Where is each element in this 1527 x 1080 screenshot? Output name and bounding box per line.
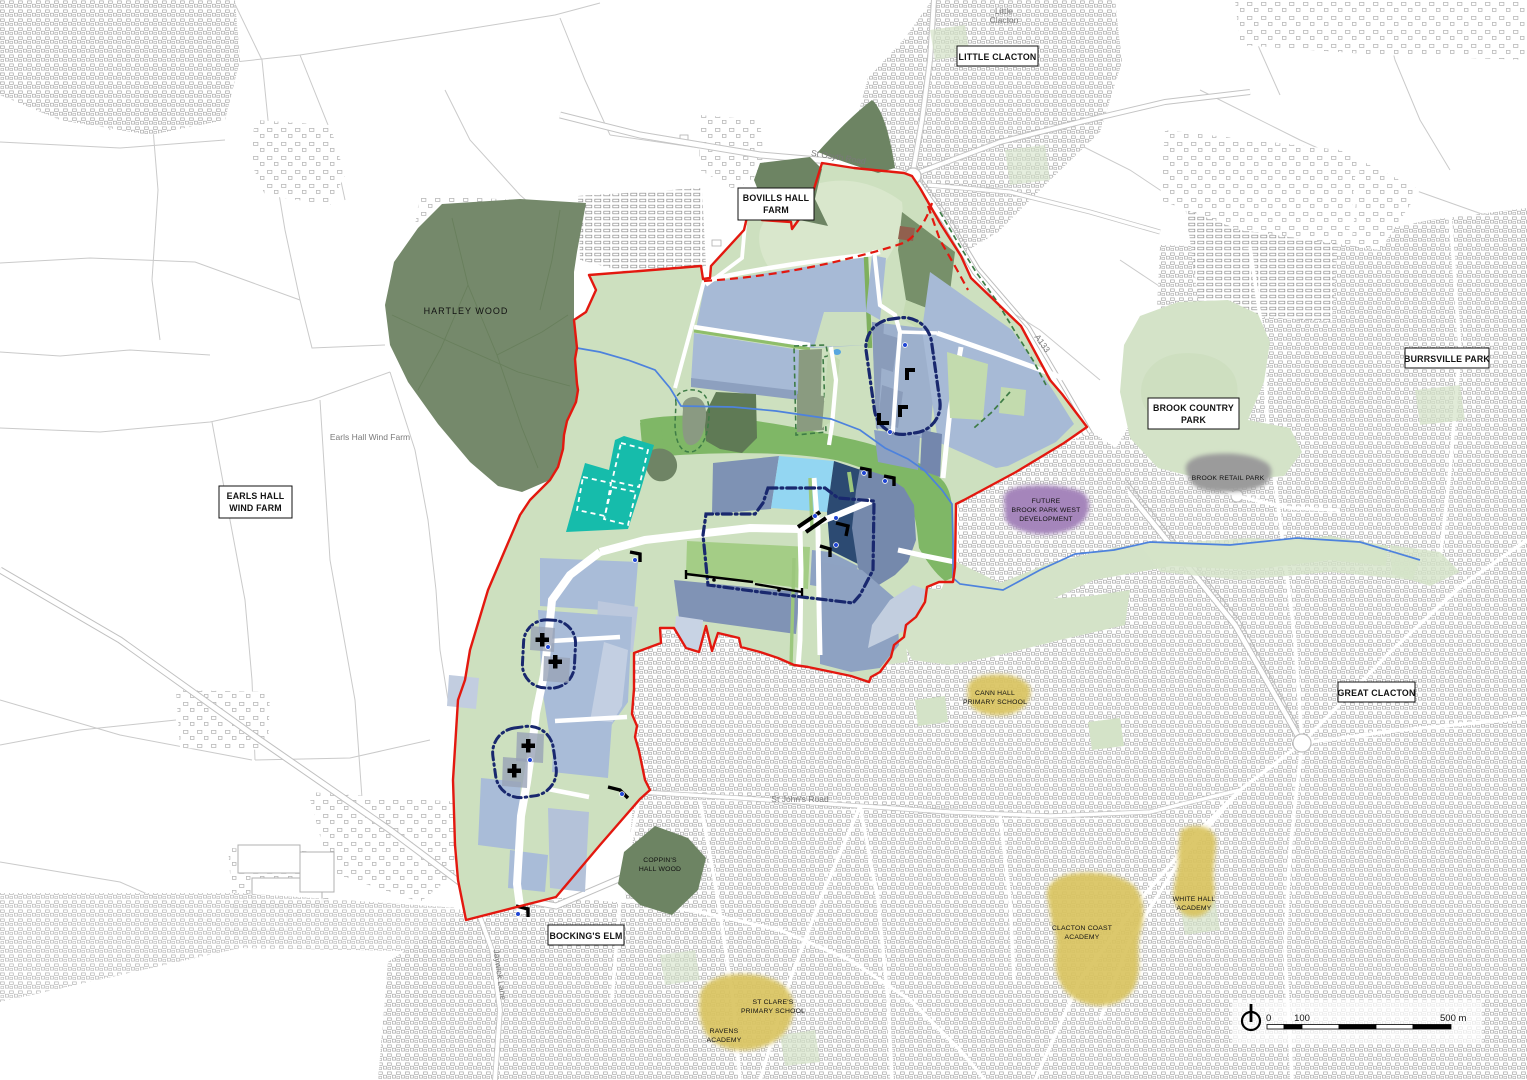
svg-text:500 m: 500 m	[1440, 1013, 1466, 1024]
svg-text:COPPIN'S: COPPIN'S	[643, 857, 677, 864]
svg-text:FARM: FARM	[763, 205, 789, 215]
svg-text:RAVENS: RAVENS	[710, 1028, 739, 1035]
svg-text:Earls Hall Wind Farm: Earls Hall Wind Farm	[330, 432, 410, 442]
svg-text:GREAT CLACTON: GREAT CLACTON	[1337, 688, 1415, 698]
svg-text:PRIMARY SCHOOL: PRIMARY SCHOOL	[963, 699, 1027, 706]
svg-text:BURRSVILLE PARK: BURRSVILLE PARK	[1404, 354, 1490, 364]
svg-text:HALL WOOD: HALL WOOD	[639, 866, 681, 873]
svg-text:BROOK PARK WEST: BROOK PARK WEST	[1012, 507, 1081, 514]
svg-text:BOVILLS HALL: BOVILLS HALL	[743, 193, 810, 203]
svg-text:FUTURE: FUTURE	[1032, 498, 1061, 505]
svg-text:ACADEMY: ACADEMY	[1064, 934, 1099, 941]
svg-text:BROOK COUNTRY: BROOK COUNTRY	[1153, 403, 1234, 413]
svg-text:PARK: PARK	[1181, 415, 1207, 425]
svg-text:BOCKING'S ELM: BOCKING'S ELM	[549, 931, 622, 941]
svg-text:ACADEMY: ACADEMY	[706, 1037, 741, 1044]
svg-text:Clacton: Clacton	[990, 15, 1019, 25]
svg-text:ST CLARE'S: ST CLARE'S	[753, 999, 794, 1006]
svg-text:WIND FARM: WIND FARM	[229, 503, 282, 513]
svg-text:St John's Road: St John's Road	[771, 794, 829, 804]
svg-text:PRIMARY SCHOOL: PRIMARY SCHOOL	[741, 1008, 805, 1015]
svg-text:CLACTON COAST: CLACTON COAST	[1052, 925, 1112, 932]
svg-text:HARTLEY WOOD: HARTLEY WOOD	[424, 306, 509, 316]
svg-text:DEVELOPMENT: DEVELOPMENT	[1019, 516, 1073, 523]
svg-text:ACADEMY: ACADEMY	[1176, 905, 1211, 912]
svg-text:100: 100	[1294, 1013, 1310, 1024]
svg-text:LITTLE CLACTON: LITTLE CLACTON	[959, 52, 1037, 62]
svg-text:WHITE HALL: WHITE HALL	[1173, 896, 1216, 903]
svg-text:0: 0	[1266, 1013, 1271, 1024]
svg-text:CANN HALL: CANN HALL	[975, 690, 1015, 697]
svg-text:EARLS HALL: EARLS HALL	[227, 491, 285, 501]
svg-text:BROOK RETAIL PARK: BROOK RETAIL PARK	[1192, 475, 1265, 482]
